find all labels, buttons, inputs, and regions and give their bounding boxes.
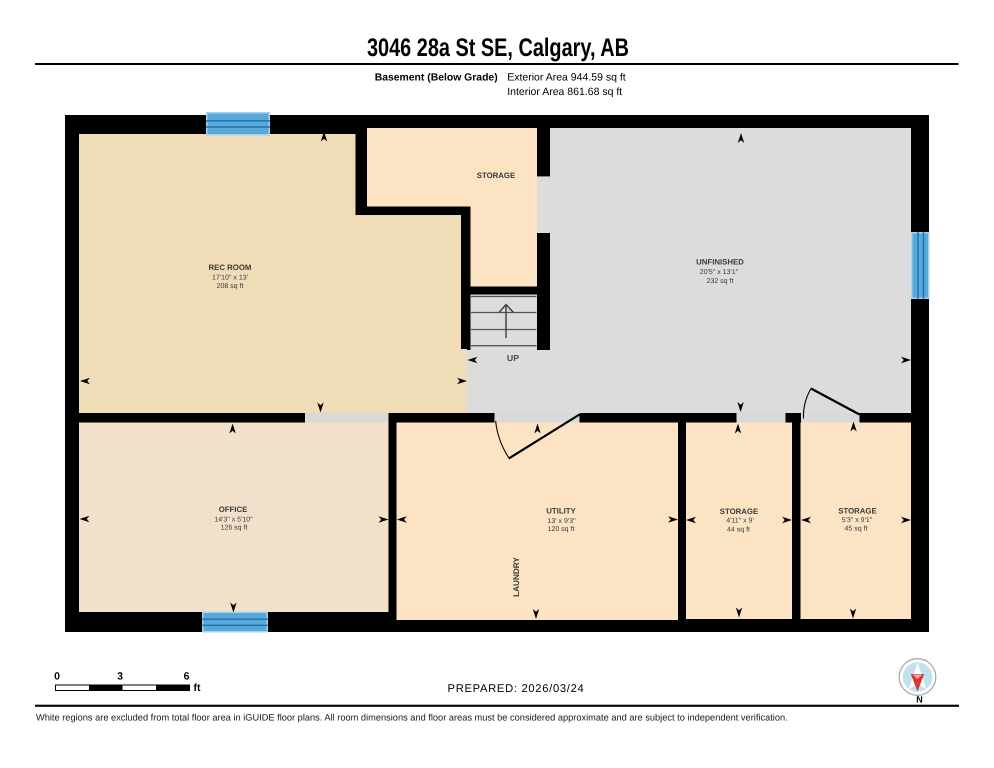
svg-text:OFFICE: OFFICE	[219, 505, 248, 514]
svg-text:Interior Area 861.68 sq ft: Interior Area 861.68 sq ft	[507, 86, 622, 98]
svg-text:STORAGE: STORAGE	[838, 507, 876, 516]
svg-text:STORAGE: STORAGE	[477, 171, 515, 180]
svg-text:6: 6	[184, 670, 190, 682]
svg-text:ft: ft	[194, 682, 201, 694]
svg-text:Basement (Below Grade): Basement (Below Grade)	[375, 72, 498, 83]
svg-text:Exterior Area 944.59 sq ft: Exterior Area 944.59 sq ft	[507, 71, 626, 83]
svg-text:PREPARED: 2026/03/24: PREPARED: 2026/03/24	[448, 683, 585, 695]
svg-text:3046 28a St SE, Calgary, AB: 3046 28a St SE, Calgary, AB	[367, 34, 629, 62]
svg-text:STORAGE: STORAGE	[720, 507, 758, 516]
svg-text:17'10" x 13': 17'10" x 13'	[212, 275, 248, 282]
svg-text:232 sq ft: 232 sq ft	[707, 277, 734, 285]
svg-text:45 sq ft: 45 sq ft	[845, 525, 868, 533]
svg-text:5'3" x 9'1": 5'3" x 9'1"	[842, 517, 873, 524]
svg-text:126 sq ft: 126 sq ft	[221, 524, 248, 532]
svg-text:3: 3	[117, 670, 123, 682]
svg-text:0: 0	[54, 670, 60, 682]
svg-text:208 sq ft: 208 sq ft	[217, 282, 244, 290]
svg-text:14'3" x 5'10": 14'3" x 5'10"	[214, 517, 253, 524]
svg-text:REC ROOM: REC ROOM	[209, 263, 252, 272]
svg-text:UTILITY: UTILITY	[546, 507, 576, 516]
svg-text:White regions are excluded fro: White regions are excluded from total fl…	[36, 713, 788, 723]
svg-text:UP: UP	[507, 353, 519, 363]
svg-text:20'5" x 13'1": 20'5" x 13'1"	[700, 269, 739, 276]
svg-text:N: N	[916, 695, 923, 705]
svg-text:UNFINISHED: UNFINISHED	[696, 258, 744, 267]
svg-text:44 sq ft: 44 sq ft	[727, 526, 750, 534]
svg-text:LAUNDRY: LAUNDRY	[512, 557, 521, 597]
svg-text:4'11" x 9': 4'11" x 9'	[726, 518, 754, 525]
svg-text:13' x 9'3": 13' x 9'3"	[547, 518, 576, 525]
svg-text:120 sq ft: 120 sq ft	[548, 525, 575, 533]
